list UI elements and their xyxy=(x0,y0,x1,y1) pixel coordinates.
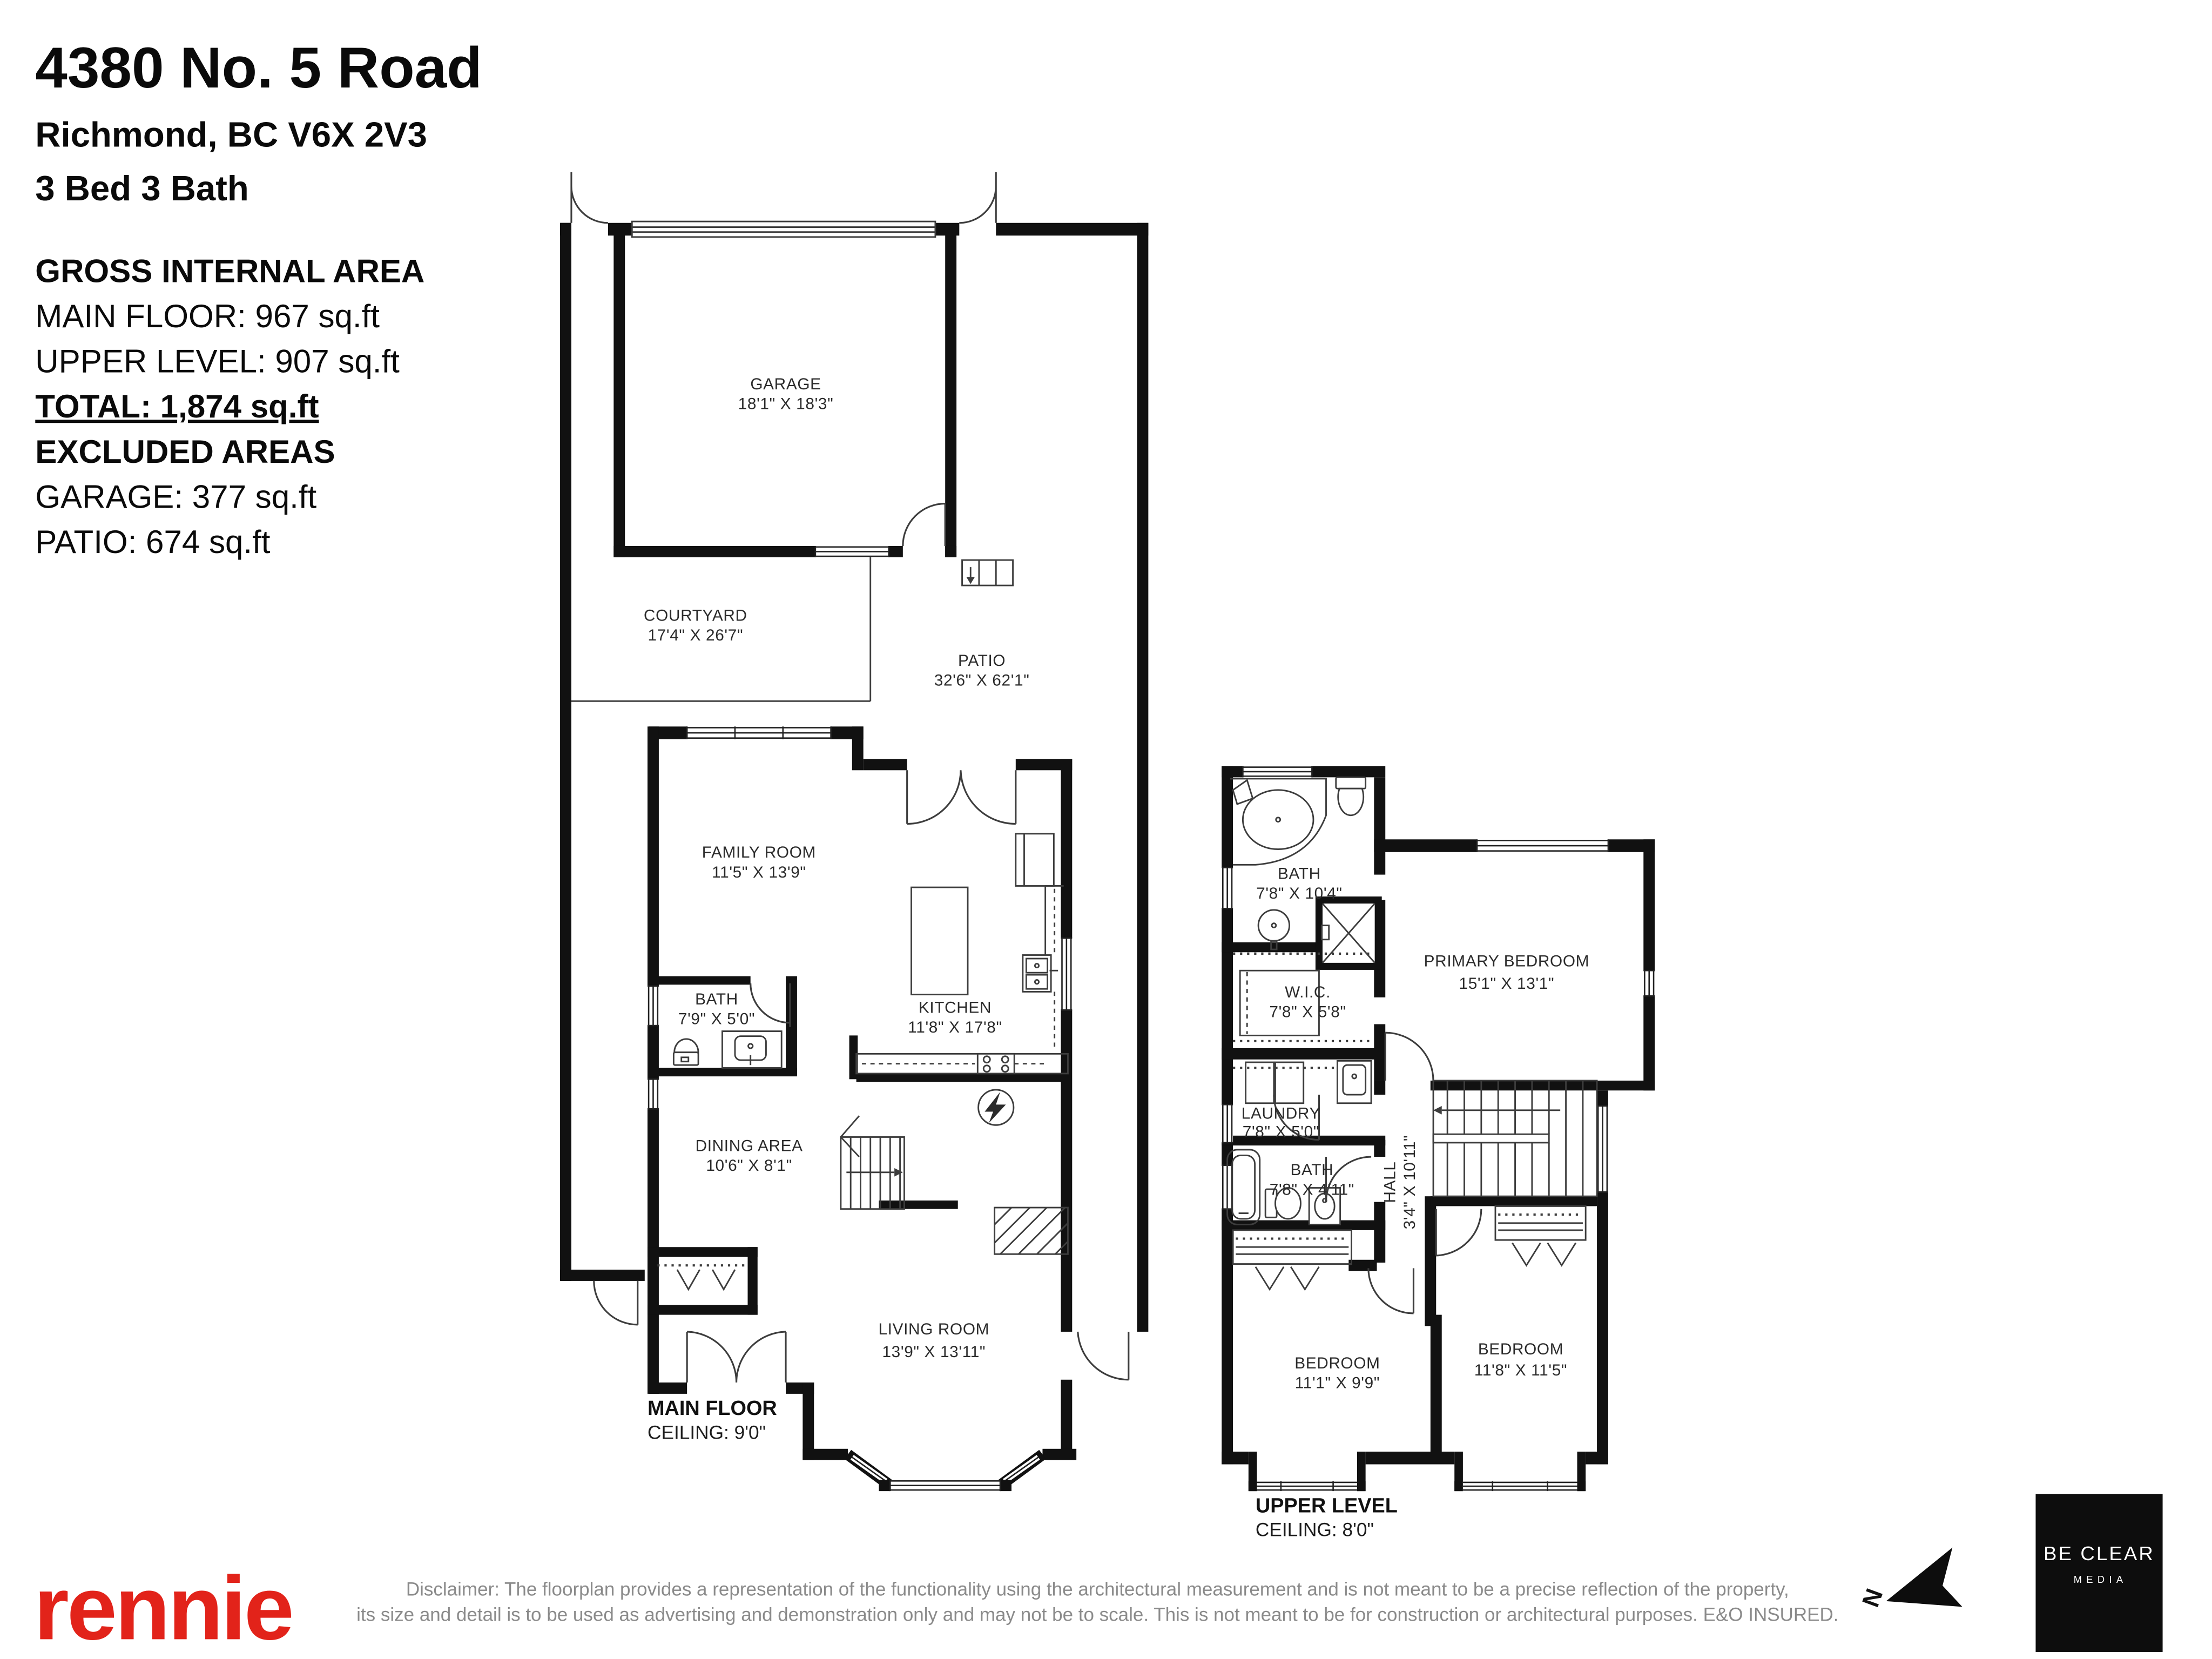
beds-baths: 3 Bed 3 Bath xyxy=(35,168,249,208)
floorplan-canvas: 4380 No. 5 Road Richmond, BC V6X 2V3 3 B… xyxy=(0,0,2212,1659)
living-block-walls xyxy=(560,726,1076,1460)
patio-dims: 32'6" X 62'1" xyxy=(934,672,1030,690)
entry-double-door xyxy=(687,1332,786,1382)
primary-label: PRIMARY BEDROOM xyxy=(1424,952,1589,970)
kitchen-patio-double-door xyxy=(907,770,1016,824)
media-text: MEDIA xyxy=(2074,1574,2128,1585)
header-block: 4380 No. 5 Road Richmond, BC V6X 2V3 3 B… xyxy=(35,35,482,208)
family-room-dims: 11'5" X 13'9" xyxy=(712,864,806,881)
garage-area: GARAGE: 377 sq.ft xyxy=(35,478,316,515)
toilet-icon-upper xyxy=(1336,777,1366,815)
bedroom1-closet xyxy=(1233,1230,1351,1290)
main-bath-label: BATH xyxy=(695,990,738,1008)
electrical-panel-icon xyxy=(979,1090,1014,1125)
corner-tub-icon xyxy=(1230,779,1326,865)
main-bath-door xyxy=(751,983,790,1027)
fridge-icon xyxy=(1016,834,1054,886)
courtyard-dims: 17'4" X 26'7" xyxy=(648,626,743,644)
courtyard-label: COURTYARD xyxy=(644,606,747,624)
kitchen-sink-icon xyxy=(1023,955,1058,992)
exterior-door-right xyxy=(959,172,996,223)
laundry-left-window xyxy=(1222,1104,1233,1143)
living-room-dims: 13'9" X 13'11" xyxy=(882,1343,986,1361)
bath2-label: BATH xyxy=(1290,1161,1333,1179)
main-floor-area: MAIN FLOOR: 967 sq.ft xyxy=(35,298,380,334)
garage-label: GARAGE xyxy=(750,375,821,393)
laundry-label: LAUNDRY xyxy=(1242,1105,1320,1123)
patio-label: PATIO xyxy=(958,652,1006,670)
rennie-logo: rennie xyxy=(34,1558,292,1658)
page-title: 4380 No. 5 Road xyxy=(35,35,482,100)
dining-window xyxy=(648,1079,659,1109)
stair-right-window xyxy=(1597,1106,1608,1192)
vanity-sink-icon-main xyxy=(722,1031,781,1068)
gross-area-title: GROSS INTERNAL AREA xyxy=(35,253,424,289)
hatched-steps xyxy=(995,1208,1068,1254)
main-bath-window xyxy=(648,986,659,1026)
upper-bath-left-window xyxy=(1222,868,1233,909)
main-floor-plan: GARAGE 18'1" X 18'3" COURTYARD 17'4" X 2… xyxy=(560,172,1148,1491)
bay-window xyxy=(848,1454,1042,1491)
main-floor-title: MAIN FLOOR xyxy=(648,1397,777,1420)
bedroom1-label: BEDROOM xyxy=(1294,1354,1380,1372)
upper-bath-label: BATH xyxy=(1278,865,1321,882)
bath2-dims: 7'8" X 4'11" xyxy=(1270,1181,1354,1199)
disclaimer-line2: its size and detail is to be used as adv… xyxy=(356,1604,1838,1625)
entry-closet xyxy=(657,1265,747,1289)
floorplan-page: 4380 No. 5 Road Richmond, BC V6X 2V3 3 B… xyxy=(0,0,2212,1659)
beclear-media-logo: BE CLEAR MEDIA xyxy=(2035,1494,2162,1652)
north-label: N xyxy=(1857,1585,1888,1610)
living-patio-door xyxy=(1078,1332,1129,1380)
stove-icon xyxy=(977,1054,1014,1074)
garage-door xyxy=(632,221,935,237)
primary-bedroom-door xyxy=(1385,1033,1433,1081)
bedroom2-label: BEDROOM xyxy=(1478,1340,1563,1358)
washer-dryer-icons xyxy=(1233,1061,1371,1103)
disclaimer-line1: Disclaimer: The floorplan provides a rep… xyxy=(406,1579,1789,1600)
beclear-text: BE CLEAR xyxy=(2044,1542,2155,1564)
wic-dims: 7'8" X 5'8" xyxy=(1269,1003,1346,1021)
upper-level-area: UPPER LEVEL: 907 sq.ft xyxy=(35,343,400,380)
area-stats-block: GROSS INTERNAL AREA MAIN FLOOR: 967 sq.f… xyxy=(35,253,424,560)
shower-icon xyxy=(1319,900,1378,967)
north-arrow-icon: N xyxy=(1857,1548,1962,1611)
main-stairs xyxy=(841,1116,905,1209)
upper-level-ceiling: CEILING: 8'0" xyxy=(1256,1520,1374,1541)
bedroom1-dims: 11'1" X 9'9" xyxy=(1295,1374,1380,1392)
tub-icon-bath2 xyxy=(1228,1150,1260,1224)
main-bath-dims: 7'9" X 5'0" xyxy=(678,1010,755,1028)
wic-label: W.I.C. xyxy=(1285,983,1331,1001)
courtyard-area: COURTYARD 17'4" X 26'7" xyxy=(571,557,871,701)
excluded-title: EXCLUDED AREAS xyxy=(35,434,335,470)
kitchen-label: KITCHEN xyxy=(919,999,992,1017)
patio-area: PATIO 32'6" X 62'1" xyxy=(934,652,1030,690)
upper-bath-top-window xyxy=(1243,766,1312,777)
main-floor-ceiling: CEILING: 9'0" xyxy=(648,1422,766,1443)
living-room-label: LIVING ROOM xyxy=(878,1320,989,1338)
kitchen-dims: 11'8" X 17'8" xyxy=(908,1019,1002,1036)
family-room-window xyxy=(687,726,831,739)
primary-dims: 15'1" X 13'1" xyxy=(1459,975,1555,993)
exterior-door-left xyxy=(571,172,608,223)
bedroom2-dims: 11'8" X 11'5" xyxy=(1474,1361,1567,1379)
primary-right-window xyxy=(1643,970,1655,996)
kitchen-right-window xyxy=(1061,938,1072,1010)
family-room-label: FAMILY ROOM xyxy=(702,844,816,861)
bedroom2-door xyxy=(1436,1209,1481,1256)
bedroom2-bay-window xyxy=(1454,1452,1586,1491)
bedroom1-door xyxy=(1368,1268,1414,1313)
garage-side-door xyxy=(903,504,945,546)
upper-bath-dims: 7'8" X 10'4" xyxy=(1256,885,1343,902)
hall-dims: 3'4" X 10'11" xyxy=(1401,1135,1419,1230)
kitchen-island xyxy=(912,887,968,995)
upper-level-plan: BATH 7'8" X 10'4" W.I.C. 7'8" X 5'8" PRI… xyxy=(1222,766,1655,1540)
upper-level-title: UPPER LEVEL xyxy=(1256,1494,1398,1517)
footer: rennie Disclaimer: The floorplan provide… xyxy=(34,1494,2163,1658)
garage-room: GARAGE 18'1" X 18'3" xyxy=(613,234,1013,585)
bedroom1-bay-window xyxy=(1249,1452,1366,1491)
dining-label: DINING AREA xyxy=(696,1137,803,1155)
dining-dims: 10'6" X 8'1" xyxy=(706,1157,792,1175)
upper-stairs xyxy=(1433,1081,1597,1196)
bedroom2-closet xyxy=(1495,1206,1586,1265)
patio-area: PATIO: 674 sq.ft xyxy=(35,524,270,560)
entry-steps xyxy=(962,560,1013,585)
primary-window xyxy=(1477,839,1608,852)
toilet-icon-main xyxy=(673,1039,698,1065)
total-area: TOTAL: 1,874 sq.ft xyxy=(35,388,319,424)
porch-side-door xyxy=(594,1281,638,1325)
laundry-dims: 7'8" X 5'0" xyxy=(1243,1123,1319,1141)
address-city: Richmond, BC V6X 2V3 xyxy=(35,115,427,154)
garage-dims: 18'1" X 18'3" xyxy=(738,395,834,413)
hall-label: HALL xyxy=(1381,1162,1399,1203)
garage-window xyxy=(815,546,889,557)
